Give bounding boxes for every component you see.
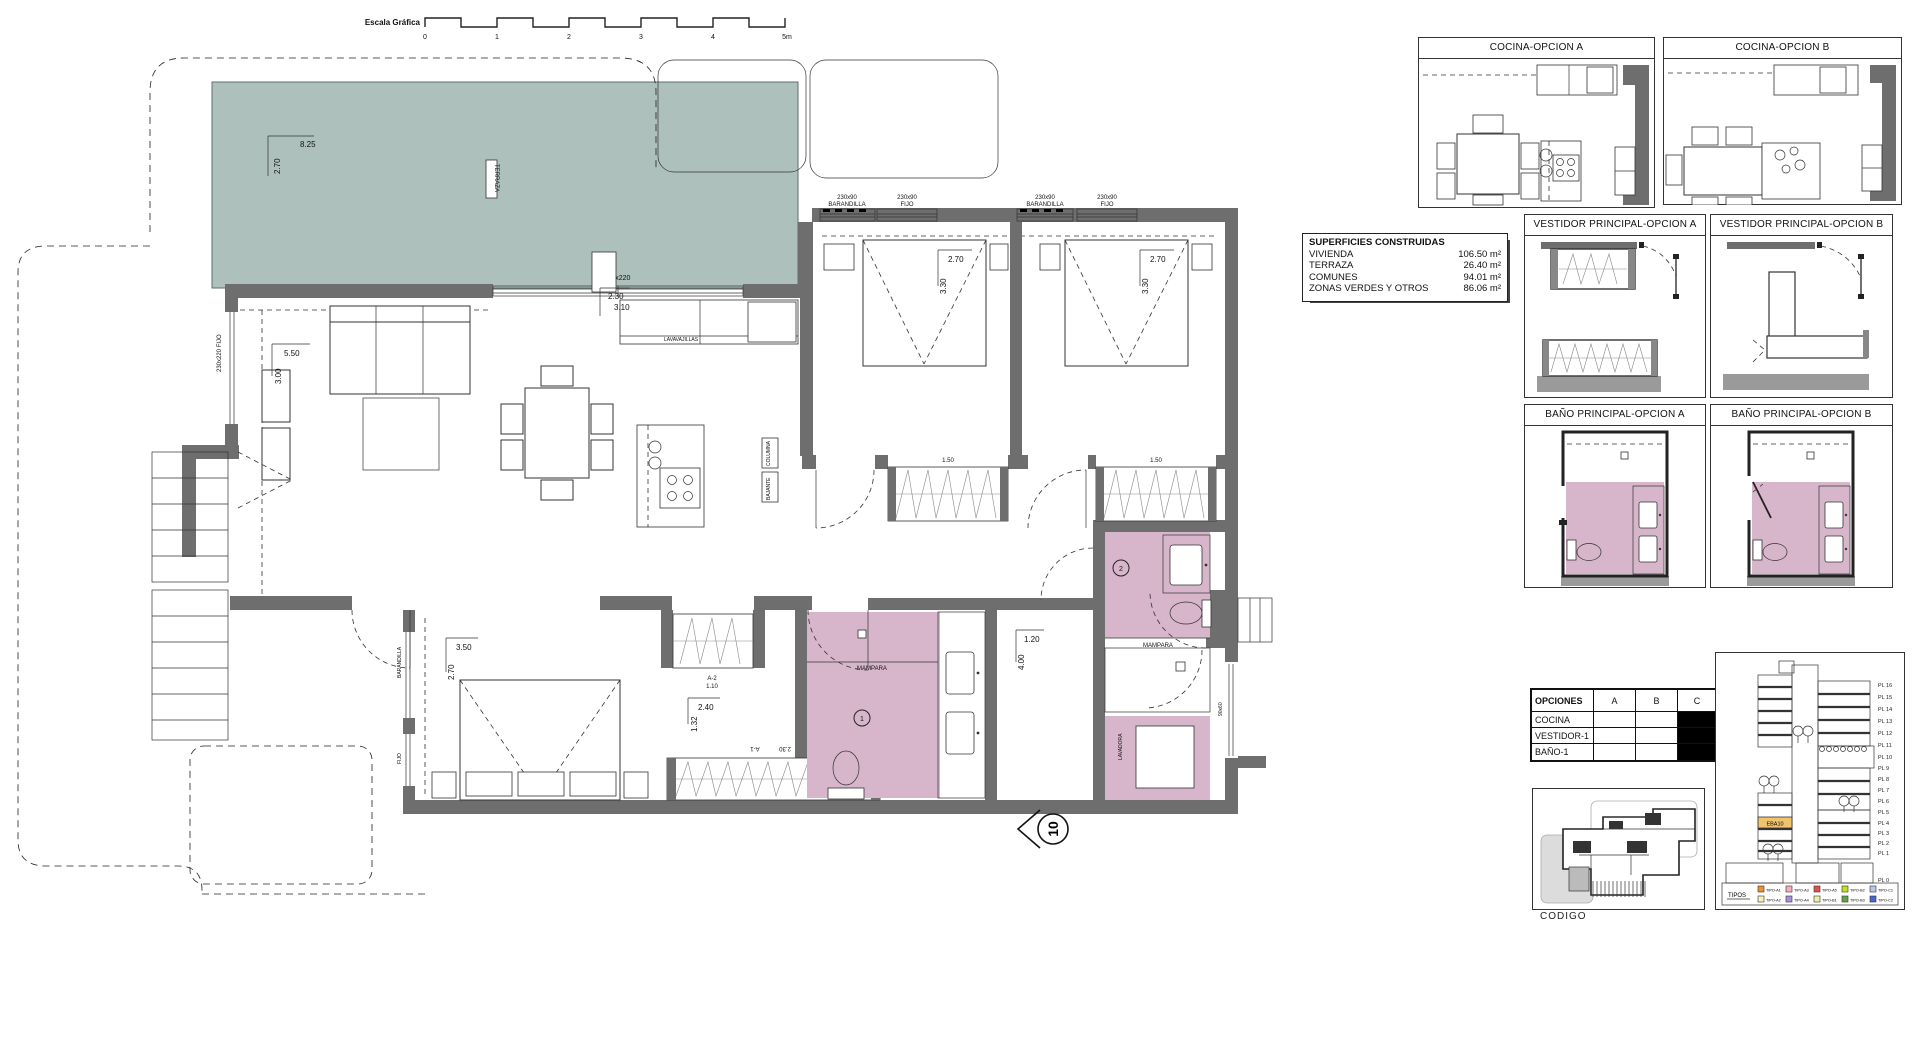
level-label: PL 6 xyxy=(1878,799,1889,805)
level-label: PL 9 xyxy=(1878,766,1889,772)
dim: 2.70 xyxy=(447,664,456,680)
surface-value: 26.40 m² xyxy=(1464,260,1502,272)
surfaces-table: SUPERFICIES CONSTRUIDAS VIVIENDA 106.50 … xyxy=(1302,233,1508,302)
dim: 2.30 xyxy=(608,292,624,301)
opciones-header: C xyxy=(1678,690,1716,712)
surface-label: ZONAS VERDES Y OTROS xyxy=(1309,283,1428,295)
section-highlight-label: EBA10 xyxy=(1766,822,1783,828)
bano-a-drawing xyxy=(1525,426,1705,588)
opciones-row-label: COCINA xyxy=(1532,712,1594,728)
wardrobe-label: 2.30 xyxy=(779,745,791,751)
floor-plan: Escala Gráfica 0 1 2 3 4 5m TERRAZA 8.25… xyxy=(0,0,1330,1062)
level-label: PL 14 xyxy=(1878,707,1892,713)
panel-vestidor-b: VESTIDOR PRINCIPAL-OPCION B xyxy=(1710,214,1893,398)
legend-swatch xyxy=(1758,896,1764,902)
legend-swatch xyxy=(1842,886,1848,892)
window-label: BARANDILLA xyxy=(828,202,865,208)
level-label: PL 16 xyxy=(1878,683,1892,689)
key-plan xyxy=(1532,788,1705,910)
panel-title: BAÑO PRINCIPAL-OPCION A xyxy=(1525,405,1705,426)
bedroom-1: 2.70 3.30 xyxy=(824,240,1008,366)
cocina-b-drawing xyxy=(1664,59,1901,205)
exterior-landing xyxy=(1238,598,1272,642)
unit-number: 10 xyxy=(1045,821,1061,837)
level-label: PL 8 xyxy=(1878,777,1889,783)
legend-label: TIPO-A1 xyxy=(1766,889,1781,893)
panel-title: COCINA-OPCION B xyxy=(1664,38,1901,59)
dim: 1.50 xyxy=(1150,458,1162,464)
terrace: TERRAZA 8.25 2.70 xyxy=(212,82,798,288)
surface-value: 106.50 m² xyxy=(1458,249,1501,261)
vestidor-b-drawing xyxy=(1711,236,1892,398)
level-label: PL 15 xyxy=(1878,695,1892,701)
opciones-cell xyxy=(1636,744,1678,760)
wardrobes: 1.50 1.50 xyxy=(888,458,1216,521)
panel-cocina-b: COCINA-OPCION B xyxy=(1663,37,1902,205)
level-label: PL 1 xyxy=(1878,851,1889,857)
wardrobe-label: A-2 xyxy=(707,676,717,682)
legend-label: TIPO-C2 xyxy=(1878,899,1893,903)
legend-swatch xyxy=(1814,896,1820,902)
opciones-header: OPCIONES xyxy=(1532,690,1594,712)
panel-title: VESTIDOR PRINCIPAL-OPCION A xyxy=(1525,215,1705,236)
surface-value: 94.01 m² xyxy=(1464,272,1502,284)
opciones-cell-selected xyxy=(1678,712,1716,728)
dim: 3.30 xyxy=(1141,278,1150,294)
scale-tick: 2 xyxy=(567,34,571,41)
column-label: BAJANTE xyxy=(766,477,772,500)
surfaces-row: COMUNES 94.01 m² xyxy=(1309,272,1501,284)
scale-bar: Escala Gráfica 0 1 2 3 4 5m xyxy=(365,18,792,41)
column-label: COLUMNA xyxy=(766,440,772,466)
legend-swatch xyxy=(1870,896,1876,902)
scale-bar-label: Escala Gráfica xyxy=(365,18,421,27)
legend-swatch xyxy=(1758,886,1764,892)
key-plan-drawing xyxy=(1533,789,1704,909)
window-label: 230x220 FIJO xyxy=(217,334,223,372)
legend-title: TIPOS xyxy=(1728,893,1746,899)
opciones-cell xyxy=(1594,728,1636,744)
legend-label: TIPO-B3 xyxy=(1850,899,1865,903)
level-label: PL 5 xyxy=(1878,810,1889,816)
appliance-label: LAVAVAJILLAS xyxy=(664,337,699,343)
wardrobe-label: A-1 xyxy=(750,745,760,751)
legend-label: TIPO-B1 xyxy=(1822,899,1837,903)
legend-swatch xyxy=(1842,896,1848,902)
opciones-header: B xyxy=(1636,690,1678,712)
opciones-cell xyxy=(1594,712,1636,728)
dim: 1.32 xyxy=(690,716,699,732)
level-label: PL 2 xyxy=(1878,841,1889,847)
opciones-cell xyxy=(1636,728,1678,744)
unit-number-marker: 10 xyxy=(1018,810,1068,848)
level-label: PL 4 xyxy=(1878,821,1889,827)
opciones-row-label: VESTIDOR-1 xyxy=(1532,728,1594,744)
surface-label: COMUNES xyxy=(1309,272,1358,284)
level-label: PL 10 xyxy=(1878,755,1892,761)
legend-label: TIPO-B2 xyxy=(1850,889,1865,893)
dim: 4.00 xyxy=(1017,654,1026,670)
surfaces-row: TERRAZA 26.40 m² xyxy=(1309,260,1501,272)
dim: 2.70 xyxy=(948,255,964,264)
dim: 3.10 xyxy=(614,303,630,312)
window-label: FIJO xyxy=(901,202,914,208)
window-label: BARANDILLA xyxy=(397,646,403,678)
window-label: FIJO xyxy=(1101,202,1114,208)
scale-tick: 1 xyxy=(495,34,499,41)
bathroom-2: MAMPARA 2 LAVADORA xyxy=(1105,532,1211,800)
surface-label: VIVIENDA xyxy=(1309,249,1353,261)
mampara-label: MAMPARA xyxy=(857,666,887,672)
opciones-cell-selected xyxy=(1678,744,1716,760)
window-label: 230x90 xyxy=(897,195,917,201)
legend-swatch xyxy=(1786,886,1792,892)
level-label: PL 3 xyxy=(1878,831,1889,837)
window-label: 230x90 xyxy=(1035,195,1055,201)
opciones-row-label: BAÑO-1 xyxy=(1532,744,1594,760)
panel-vestidor-a: VESTIDOR PRINCIPAL-OPCION A xyxy=(1524,214,1706,398)
dim: 3.50 xyxy=(456,643,472,652)
bedroom-2: 2.70 3.30 xyxy=(1040,240,1212,366)
building-section: EBA10 PL 16 PL 15 PL 14 PL 13 PL 12 PL 1… xyxy=(1715,652,1905,910)
tipos-legend: TIPOS TIPO-A1 TIPO-A3 TIPO-A5 TIPO-B2 TI… xyxy=(1722,883,1898,905)
scale-tick: 5m xyxy=(782,34,792,41)
level-labels: PL 16 PL 15 PL 14 PL 13 PL 12 PL 11 PL 1… xyxy=(1878,683,1892,884)
bath-number: 2 xyxy=(1119,566,1123,573)
opciones-table: OPCIONES A B C COCINA VESTIDOR-1 BAÑO-1 xyxy=(1530,688,1718,762)
window-label: FIJO xyxy=(397,753,403,764)
dim: 2.70 xyxy=(273,158,282,174)
level-label: PL 7 xyxy=(1878,788,1889,794)
legend-label: TIPO-A3 xyxy=(1794,889,1809,893)
panel-title: VESTIDOR PRINCIPAL-OPCION B xyxy=(1711,215,1892,236)
key-plan-caption: CODIGO xyxy=(1540,911,1630,919)
corridor-dims: 1.20 4.00 xyxy=(1016,630,1044,670)
panel-bano-a: BAÑO PRINCIPAL-OPCION A xyxy=(1524,404,1706,588)
opciones-cell xyxy=(1636,712,1678,728)
legend-swatch xyxy=(1786,896,1792,902)
dim: 8.25 xyxy=(300,140,316,149)
scale-tick: 0 xyxy=(423,34,427,41)
legend-label: TIPO-A4 xyxy=(1794,899,1809,903)
legend-label: TIPO-A5 xyxy=(1822,889,1837,893)
scale-tick: 3 xyxy=(639,34,643,41)
opciones-cell-selected xyxy=(1678,728,1716,744)
window-label: 90x60 xyxy=(1218,702,1224,716)
bathroom-1: MAMPARA 1 xyxy=(807,612,985,799)
window-label: BARANDILLA xyxy=(1026,202,1063,208)
bath-number: 1 xyxy=(860,716,864,723)
surfaces-title: SUPERFICIES CONSTRUIDAS xyxy=(1309,237,1501,249)
opciones-header: A xyxy=(1594,690,1636,712)
panel-title: COCINA-OPCION A xyxy=(1419,38,1654,59)
cocina-a-drawing xyxy=(1419,59,1654,208)
panel-title: BAÑO PRINCIPAL-OPCION B xyxy=(1711,405,1892,426)
legend-label: TIPO-C1 xyxy=(1878,889,1893,893)
window-label: 230x90 xyxy=(1097,195,1117,201)
dim: 1.50 xyxy=(942,458,954,464)
legend-swatch xyxy=(1814,886,1820,892)
level-label: PL 12 xyxy=(1878,731,1892,737)
level-label: PL 13 xyxy=(1878,719,1892,725)
scale-tick: 4 xyxy=(711,34,715,41)
window-label: 230x90 xyxy=(837,195,857,201)
surface-value: 86.06 m² xyxy=(1464,283,1502,295)
surface-label: TERRAZA xyxy=(1309,260,1353,272)
vestidor-a-drawing xyxy=(1525,236,1705,398)
legend-label: TIPO-A2 xyxy=(1766,899,1781,903)
surfaces-row: ZONAS VERDES Y OTROS 86.06 m² xyxy=(1309,283,1501,295)
opciones-cell xyxy=(1594,744,1636,760)
laundry-label: LAVADORA xyxy=(1118,733,1124,760)
dim: 5.50 xyxy=(284,349,300,358)
dim: 1.20 xyxy=(1024,635,1040,644)
level-label: PL 11 xyxy=(1878,743,1892,749)
dim: 3.30 xyxy=(939,278,948,294)
panel-bano-b: BAÑO PRINCIPAL-OPCION B xyxy=(1710,404,1893,588)
dim: 3.00 xyxy=(274,368,283,384)
surfaces-row: VIVIENDA 106.50 m² xyxy=(1309,249,1501,261)
section-drawing: EBA10 PL 16 PL 15 PL 14 PL 13 PL 12 PL 1… xyxy=(1716,653,1904,909)
bano-b-drawing xyxy=(1711,426,1892,588)
dim: 2.40 xyxy=(698,703,714,712)
drawing-sheet: Escala Gráfica 0 1 2 3 4 5m TERRAZA 8.25… xyxy=(0,0,1920,1062)
legend-swatch xyxy=(1870,886,1876,892)
dim: 2.70 xyxy=(1150,255,1166,264)
panel-cocina-a: COCINA-OPCION A xyxy=(1418,37,1655,208)
terrace-label: TERRAZA xyxy=(493,164,499,192)
wardrobe-label: 1.10 xyxy=(706,684,718,690)
